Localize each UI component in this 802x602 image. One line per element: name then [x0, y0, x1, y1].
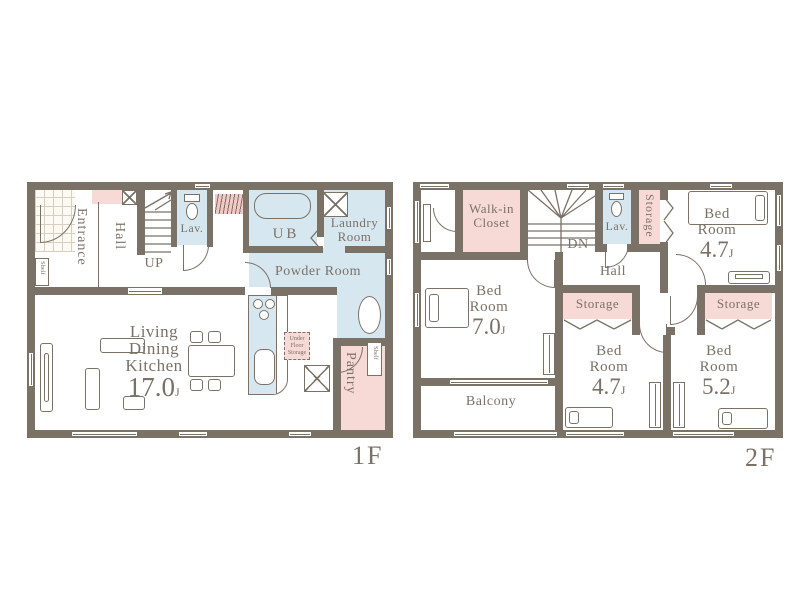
shelf-entrance-label: Shelf: [39, 261, 46, 275]
step-line: [98, 202, 99, 288]
window: [71, 431, 138, 437]
wall: [520, 190, 528, 252]
door-leaf: [457, 208, 458, 232]
wall: [632, 327, 639, 335]
storage-top-label: Storage: [642, 194, 657, 238]
storage-box-icon: [304, 365, 330, 392]
window: [419, 183, 450, 189]
door-leaf: [183, 245, 184, 271]
door-arc-bedroom-left: [527, 260, 555, 288]
floorplan-1f: UnderFloorStorage Shelf Shelf: [27, 182, 393, 438]
bathtub-icon: [254, 193, 311, 219]
wall: [35, 287, 127, 295]
window: [602, 183, 625, 189]
lavatory-label: Lav.: [175, 222, 209, 235]
under-floor-storage-label: UnderFloorStorage: [285, 336, 309, 357]
pantry-label: Pantry: [342, 352, 358, 395]
shelf-pantry-label: Shelf: [372, 346, 379, 360]
window: [386, 258, 392, 276]
window: [194, 183, 211, 189]
window: [709, 183, 733, 189]
balcony-rail: [453, 431, 558, 437]
sink-icon: [254, 349, 275, 385]
bed-pillow: [429, 294, 439, 322]
bedroom-br-label: BedRoom 5.2J: [690, 343, 748, 400]
window: [178, 431, 208, 437]
entrance-label: Entrance: [73, 208, 89, 266]
folding-door-icon: [663, 196, 675, 246]
washer-icon: [323, 192, 348, 217]
toilet-tank-icon: [184, 194, 200, 202]
wall: [627, 244, 660, 252]
window: [28, 352, 34, 387]
window: [776, 194, 782, 227]
window: [565, 431, 625, 437]
closet-door: [423, 204, 431, 242]
storage-mid-label: Storage: [563, 297, 632, 311]
stairs-up-icon: [145, 190, 171, 255]
bedroom-tr-label: BedRoom 4.7J: [681, 206, 753, 263]
bath-label: UB: [263, 226, 309, 242]
floor-label-2f: 2F: [745, 443, 776, 473]
wall: [555, 285, 640, 293]
bed-pillow: [569, 411, 579, 424]
laundry-room-label: LaundryRoom: [324, 216, 385, 244]
storage-box-icon: [122, 190, 137, 205]
desk-top: [735, 274, 763, 279]
wall: [660, 242, 668, 293]
powder-room-label: Powder Room: [253, 264, 383, 279]
bedroom-left-label: BedRoom 7.0J: [459, 283, 519, 340]
window: [414, 200, 420, 244]
window: [386, 206, 392, 230]
door-leaf: [337, 347, 338, 373]
wall: [421, 252, 528, 260]
door-leaf: [670, 296, 671, 325]
tv-screen: [44, 353, 49, 402]
hall-label: Hall: [111, 222, 127, 250]
window: [414, 292, 420, 328]
dn-label: DN: [563, 237, 593, 252]
door-leaf: [666, 324, 667, 353]
door-leaf: [554, 260, 555, 288]
dining-chair: [208, 331, 221, 343]
window: [288, 431, 312, 437]
wall: [207, 190, 213, 247]
window: [566, 183, 590, 189]
stove-burner-icon: [265, 299, 275, 309]
window: [449, 379, 549, 385]
hall-label: Hall: [590, 264, 636, 279]
balcony-label: Balcony: [458, 394, 524, 409]
window: [776, 244, 782, 272]
wall: [271, 287, 337, 295]
door-leaf: [40, 205, 41, 243]
wall: [137, 190, 145, 255]
up-label: UP: [137, 256, 171, 271]
dining-chair: [208, 379, 221, 391]
floorplan-2f: Walk-inCloset DN Lav. Storage Hall Stora…: [413, 182, 783, 438]
wall: [333, 372, 341, 430]
walkin-closet-label: Walk-inCloset: [463, 202, 520, 230]
wall: [243, 246, 323, 253]
floor-label-1f: 1F: [352, 441, 383, 471]
stove-burner-icon: [259, 310, 269, 320]
wall: [171, 190, 177, 247]
wall: [27, 182, 35, 438]
bedroom-bc-label: BedRoom 4.7J: [580, 343, 638, 400]
sliding-door: [127, 287, 163, 295]
window: [673, 382, 685, 428]
window: [649, 382, 661, 428]
entrance-storage-fill: [92, 190, 122, 204]
lavatory-label: Lav.: [601, 220, 633, 233]
wall: [555, 252, 563, 438]
floorplan-canvas: UnderFloorStorage Shelf Shelf: [0, 0, 802, 602]
under-floor-storage-box: UnderFloorStorage: [284, 332, 310, 360]
door-arc-bedroom-bc: [639, 324, 667, 353]
toilet-tank-icon: [609, 193, 624, 200]
wall: [163, 287, 245, 295]
bath-folding-door-icon: [310, 230, 319, 247]
door-arc-walkin-closet: [433, 208, 457, 232]
wall: [595, 190, 603, 244]
folding-door-icon: [705, 319, 772, 331]
storage-right-label: Storage: [705, 297, 772, 311]
ldk-label: LivingDiningKitchen 17.0J: [110, 323, 198, 401]
wall: [243, 190, 249, 250]
door-arc-lavatory: [183, 245, 209, 271]
wall: [697, 285, 705, 335]
window: [672, 431, 735, 437]
coat-hook-area: [215, 194, 243, 214]
shelf-entrance: Shelf: [35, 258, 49, 286]
shelf-pantry: Shelf: [367, 342, 382, 376]
folding-door-icon: [563, 319, 632, 331]
door-arc-bedroom-br: [670, 296, 698, 325]
window: [543, 333, 555, 375]
sofa-seat: [85, 368, 100, 410]
washbasin-icon: [358, 296, 381, 334]
bed-pillow: [722, 412, 732, 425]
wall: [667, 327, 675, 335]
bed-pillow: [755, 195, 765, 221]
wall: [703, 285, 775, 293]
toilet-bowl-icon: [186, 203, 198, 220]
toilet-bowl-icon: [611, 201, 622, 217]
wall: [345, 246, 385, 253]
stove-burner-icon: [253, 299, 263, 309]
